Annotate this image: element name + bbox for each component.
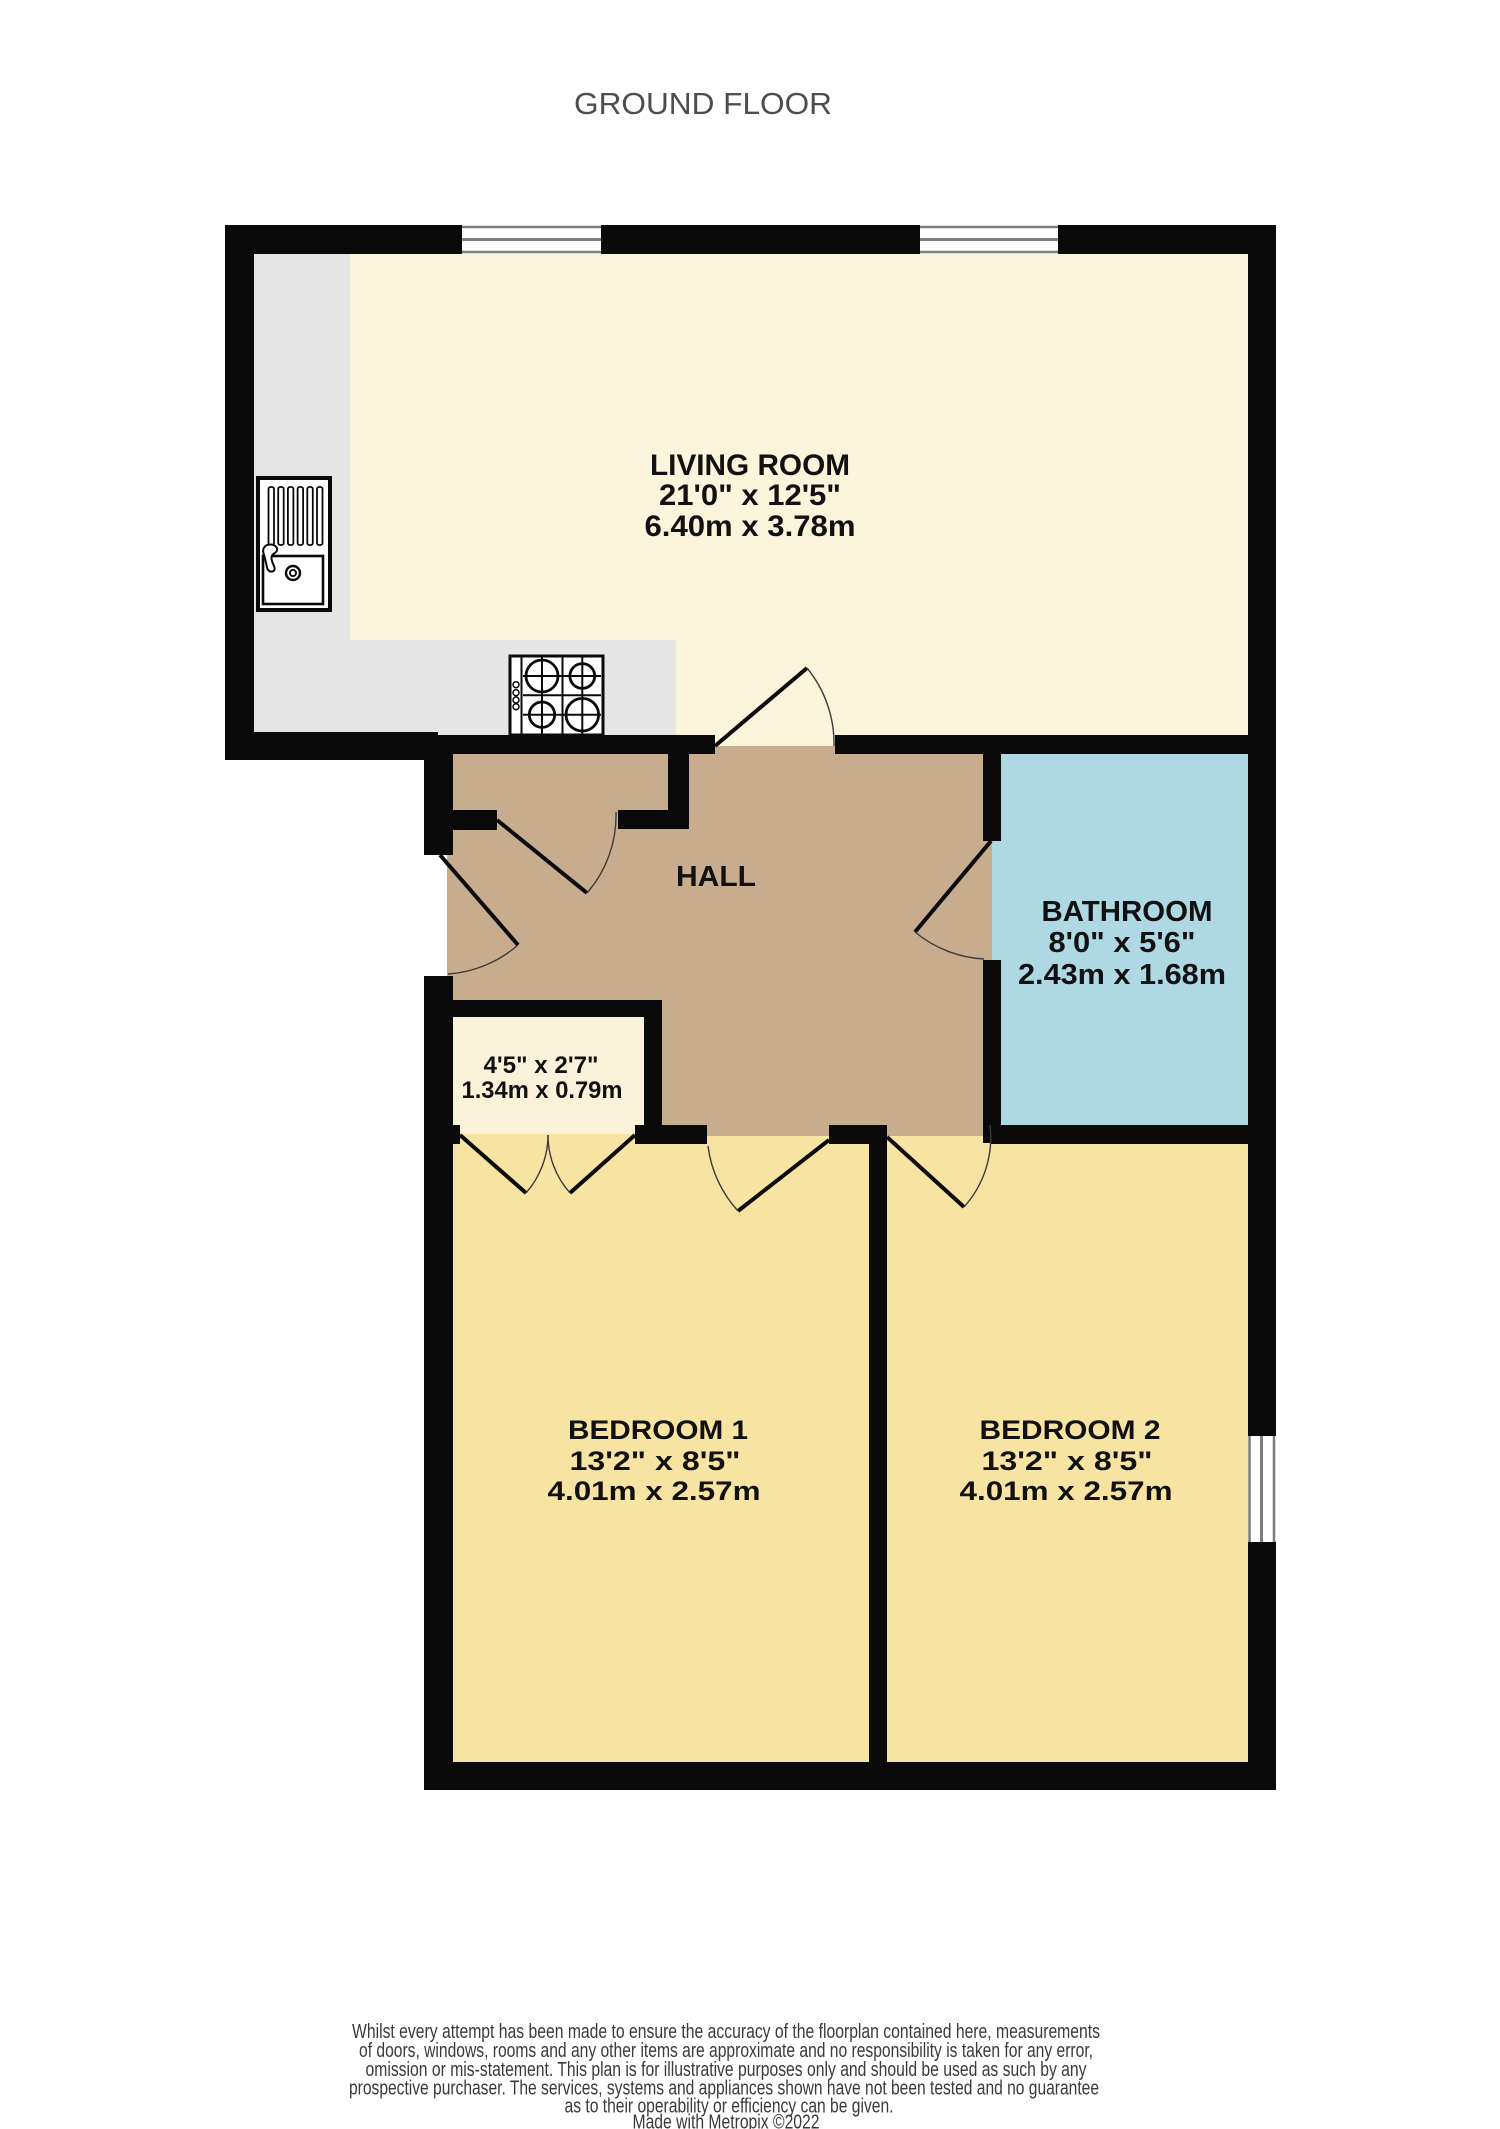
svg-text:21'0" x 12'5": 21'0" x 12'5"	[659, 479, 841, 512]
svg-text:BATHROOM: BATHROOM	[1042, 896, 1213, 928]
svg-text:4'5" x 2'7": 4'5" x 2'7"	[484, 1052, 599, 1079]
svg-text:4.01m x 2.57m: 4.01m x 2.57m	[960, 1476, 1173, 1506]
svg-text:4.01m x 2.57m: 4.01m x 2.57m	[548, 1476, 761, 1506]
svg-text:8'0" x 5'6": 8'0" x 5'6"	[1049, 927, 1196, 959]
svg-text:LIVING ROOM: LIVING ROOM	[650, 449, 850, 482]
svg-text:BEDROOM 1: BEDROOM 1	[568, 1415, 748, 1445]
svg-text:GROUND FLOOR: GROUND FLOOR	[574, 86, 832, 121]
svg-text:1.34m x 0.79m: 1.34m x 0.79m	[462, 1077, 623, 1104]
svg-text:13'2" x 8'5": 13'2" x 8'5"	[982, 1446, 1153, 1476]
svg-text:BEDROOM 2: BEDROOM 2	[980, 1415, 1161, 1445]
svg-text:Made with Metropix ©2022: Made with Metropix ©2022	[633, 2112, 820, 2129]
svg-text:HALL: HALL	[676, 861, 756, 893]
svg-text:13'2" x 8'5": 13'2" x 8'5"	[570, 1446, 741, 1476]
svg-text:2.43m x 1.68m: 2.43m x 1.68m	[1018, 959, 1226, 991]
svg-text:6.40m x 3.78m: 6.40m x 3.78m	[645, 510, 856, 543]
